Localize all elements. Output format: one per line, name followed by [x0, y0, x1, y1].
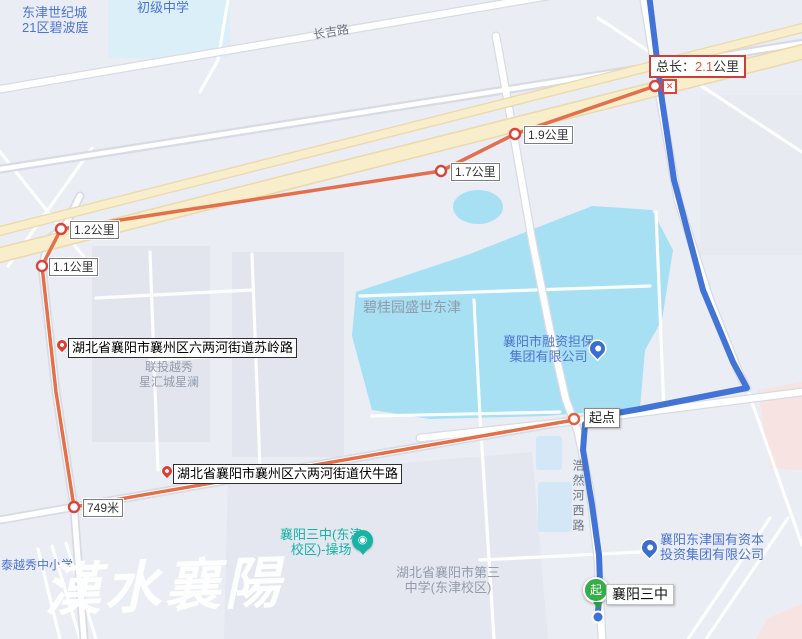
poi-rongzi-danbao[interactable]: 襄阳市融资担保 集团有限公司: [503, 334, 594, 364]
poi-guoyou-ziben[interactable]: 襄阳东津国有资本 投资集团有限公司: [660, 532, 764, 562]
close-measure-icon[interactable]: ✕: [662, 79, 677, 94]
street-callout: 湖北省襄阳市襄州区六两河街道苏岭路: [68, 338, 297, 358]
watermark: 漢水襄陽: [43, 538, 286, 627]
map-canvas[interactable]: 总长：2.1公里 ✕ 1.9公里 1.7公里 1.2公里 1.1公里 749米 …: [0, 0, 802, 639]
pool-block: [536, 436, 562, 470]
distance-marker-label: 1.2公里: [70, 221, 119, 239]
distance-marker-label: 1.7公里: [451, 163, 500, 181]
pond: [453, 190, 503, 224]
destination-label[interactable]: 襄阳三中: [606, 584, 674, 605]
total-length-value: 2.1: [695, 59, 713, 74]
poi-biguiyuan[interactable]: 碧桂园盛世东津: [363, 300, 461, 315]
distance-marker-label: 1.9公里: [524, 126, 573, 144]
total-length-box: 总长：2.1公里: [649, 55, 746, 78]
distance-marker-label: 1.1公里: [49, 258, 98, 276]
playground-icon[interactable]: ◉: [352, 530, 373, 551]
measure-start-label: 起点: [584, 408, 620, 428]
total-length-unit: 公里: [713, 59, 739, 74]
total-length-prefix: 总长：: [656, 59, 695, 74]
distance-marker-label: 749米: [83, 499, 123, 517]
road-name-haoranhexi: 浩然河西路: [570, 459, 587, 534]
poi-liantou-yuexiu[interactable]: 联投越秀 星汇城星澜: [139, 360, 199, 390]
street-callout: 湖北省襄阳市襄州区六两河街道伏牛路: [173, 464, 402, 484]
poi-no3-middle-school[interactable]: 湖北省襄阳市第三 中学(东津校区): [396, 565, 500, 595]
poi-no3-playground[interactable]: 襄阳三中(东津 校区)-操场: [280, 527, 362, 557]
pool-block: [538, 482, 572, 532]
poi-junior-middle-school[interactable]: 初级中学: [137, 0, 189, 15]
poi-dongjin-century-city[interactable]: 东津世纪城 21区碧波庭: [22, 5, 88, 35]
